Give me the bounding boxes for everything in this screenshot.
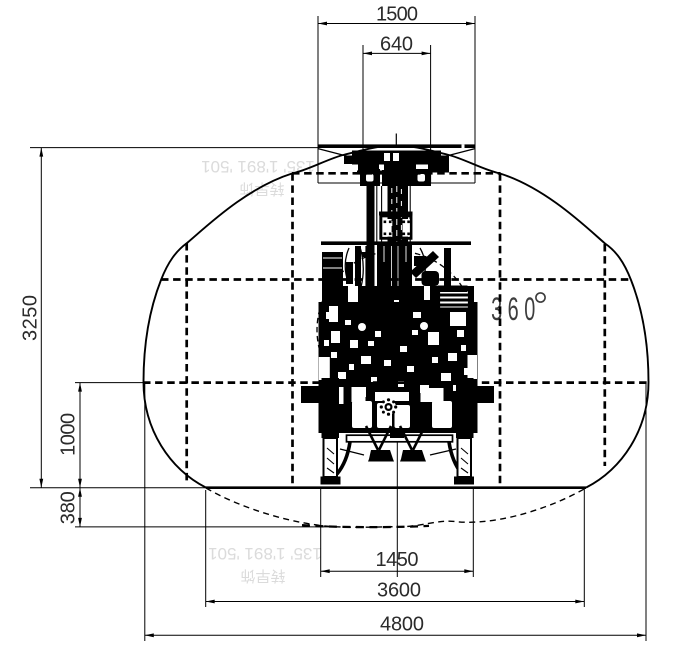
svg-text:135' 1'891 '501: 135' 1'891 '501 <box>208 544 322 563</box>
svg-text:转早饰: 转早饰 <box>239 180 284 197</box>
svg-text:360: 360 <box>491 291 541 327</box>
svg-text:380: 380 <box>58 491 80 524</box>
svg-text:3600: 3600 <box>377 580 421 602</box>
svg-text:4800: 4800 <box>380 613 424 635</box>
svg-text:转早饰: 转早饰 <box>240 567 285 584</box>
svg-text:1000: 1000 <box>58 413 80 456</box>
svg-text:640: 640 <box>380 33 413 55</box>
svg-text:1500: 1500 <box>376 4 418 26</box>
svg-text:3250: 3250 <box>20 295 42 341</box>
svg-text:1450: 1450 <box>376 549 419 571</box>
